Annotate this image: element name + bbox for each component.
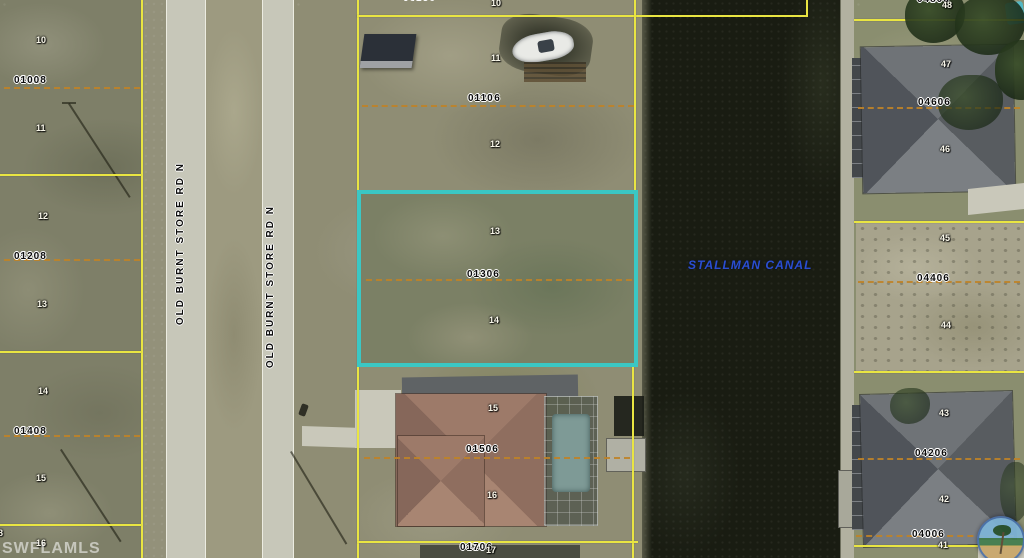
parcel-label-line2: 0170 [460, 543, 486, 554]
lumber-pile [524, 62, 586, 82]
lot-number: 43 [939, 408, 949, 418]
parcel-label-line2: 0140 [14, 427, 40, 438]
driveway-0150 [302, 426, 362, 448]
road-lane-north [166, 0, 206, 558]
parcel-boundary-line [634, 0, 636, 192]
boat-lift [614, 396, 644, 436]
canal-label-stallman-canal: STALLMAN CANAL [688, 258, 812, 272]
shed [360, 34, 417, 68]
vacant-lot-0440 [856, 223, 1024, 371]
parcel-boundary-line [632, 366, 634, 558]
parcel-boundary-line [357, 541, 638, 543]
lot-number: 41 [938, 540, 948, 550]
lot-number: 13 [37, 299, 47, 309]
lot-number: 42 [939, 494, 949, 504]
parcel-label-line2: 0090 [403, 0, 429, 4]
lot-split-line [364, 457, 630, 459]
parcel-label-line2: 0480 [917, 0, 943, 6]
parcel-label-line2: 0100 [14, 76, 40, 87]
parcel-boundary-line [0, 174, 141, 176]
parcel-label-line2: 0460 [918, 98, 944, 109]
lot-number: 14 [489, 315, 499, 325]
lot-number: 48 [942, 0, 952, 10]
lot-number: 10 [36, 35, 46, 45]
lot-number: 14 [38, 386, 48, 396]
lot-number: 10 [491, 0, 501, 8]
canal-bank [642, 0, 652, 558]
lot-number: 13 [490, 226, 500, 236]
lot-number: 47 [941, 59, 951, 69]
parcel-label-line2: 0440 [917, 274, 943, 285]
canal-water [642, 0, 854, 558]
parcel-boundary-line [357, 15, 808, 17]
lot-number: 16 [487, 490, 497, 500]
parcel-label-line2: 0150 [466, 445, 492, 456]
lot-number: 15 [36, 473, 46, 483]
tree-shadow [1000, 462, 1024, 522]
parcel-label-line2: 0420 [915, 449, 941, 460]
parcel-boundary-line [806, 0, 808, 17]
parcel-boundary-line [854, 371, 1024, 373]
swflamls-watermark: SWFLAMLS [2, 540, 101, 558]
parcel-label-line2: 0110 [468, 94, 494, 105]
aerial-parcel-map: 052280100 052280120 052280140 042560090 … [0, 0, 1024, 558]
lot-number: 46 [940, 144, 950, 154]
driveway-0170 [420, 545, 580, 558]
lot-number: 12 [38, 211, 48, 221]
lot-number: 8 [0, 528, 3, 538]
lot-number: 15 [488, 403, 498, 413]
parcel-label-line2: 0400 [912, 530, 938, 541]
parcel-boundary-line [0, 351, 141, 353]
lot-number: 45 [940, 233, 950, 243]
lot-number: 44 [941, 320, 951, 330]
parcel-boundary-line [0, 524, 141, 526]
front-apron-0150 [355, 390, 401, 448]
boat-dock [606, 438, 646, 472]
road-label-old-burnt-store-rd-n: OLD BURNT STORE RD N [175, 162, 186, 325]
swimming-pool [552, 414, 590, 492]
lot-number: 12 [490, 139, 500, 149]
lot-number: 11 [491, 53, 501, 63]
parcel-boundary-line [141, 0, 143, 558]
road-median [206, 0, 262, 558]
parcel-boundary-line [854, 221, 1024, 223]
power-pole-crossarm-shadow [62, 102, 76, 104]
parcel-label-line2: 0130 [467, 270, 493, 281]
lot-split-line [362, 105, 634, 107]
road-label-old-burnt-store-rd-n: OLD BURNT STORE RD N [265, 205, 276, 368]
lot-split-line [4, 87, 140, 89]
parcel-label-line2: 0120 [14, 252, 40, 263]
mls-logo [977, 516, 1024, 558]
lot-number: 17 [486, 545, 496, 555]
lot-number: 11 [36, 123, 46, 133]
